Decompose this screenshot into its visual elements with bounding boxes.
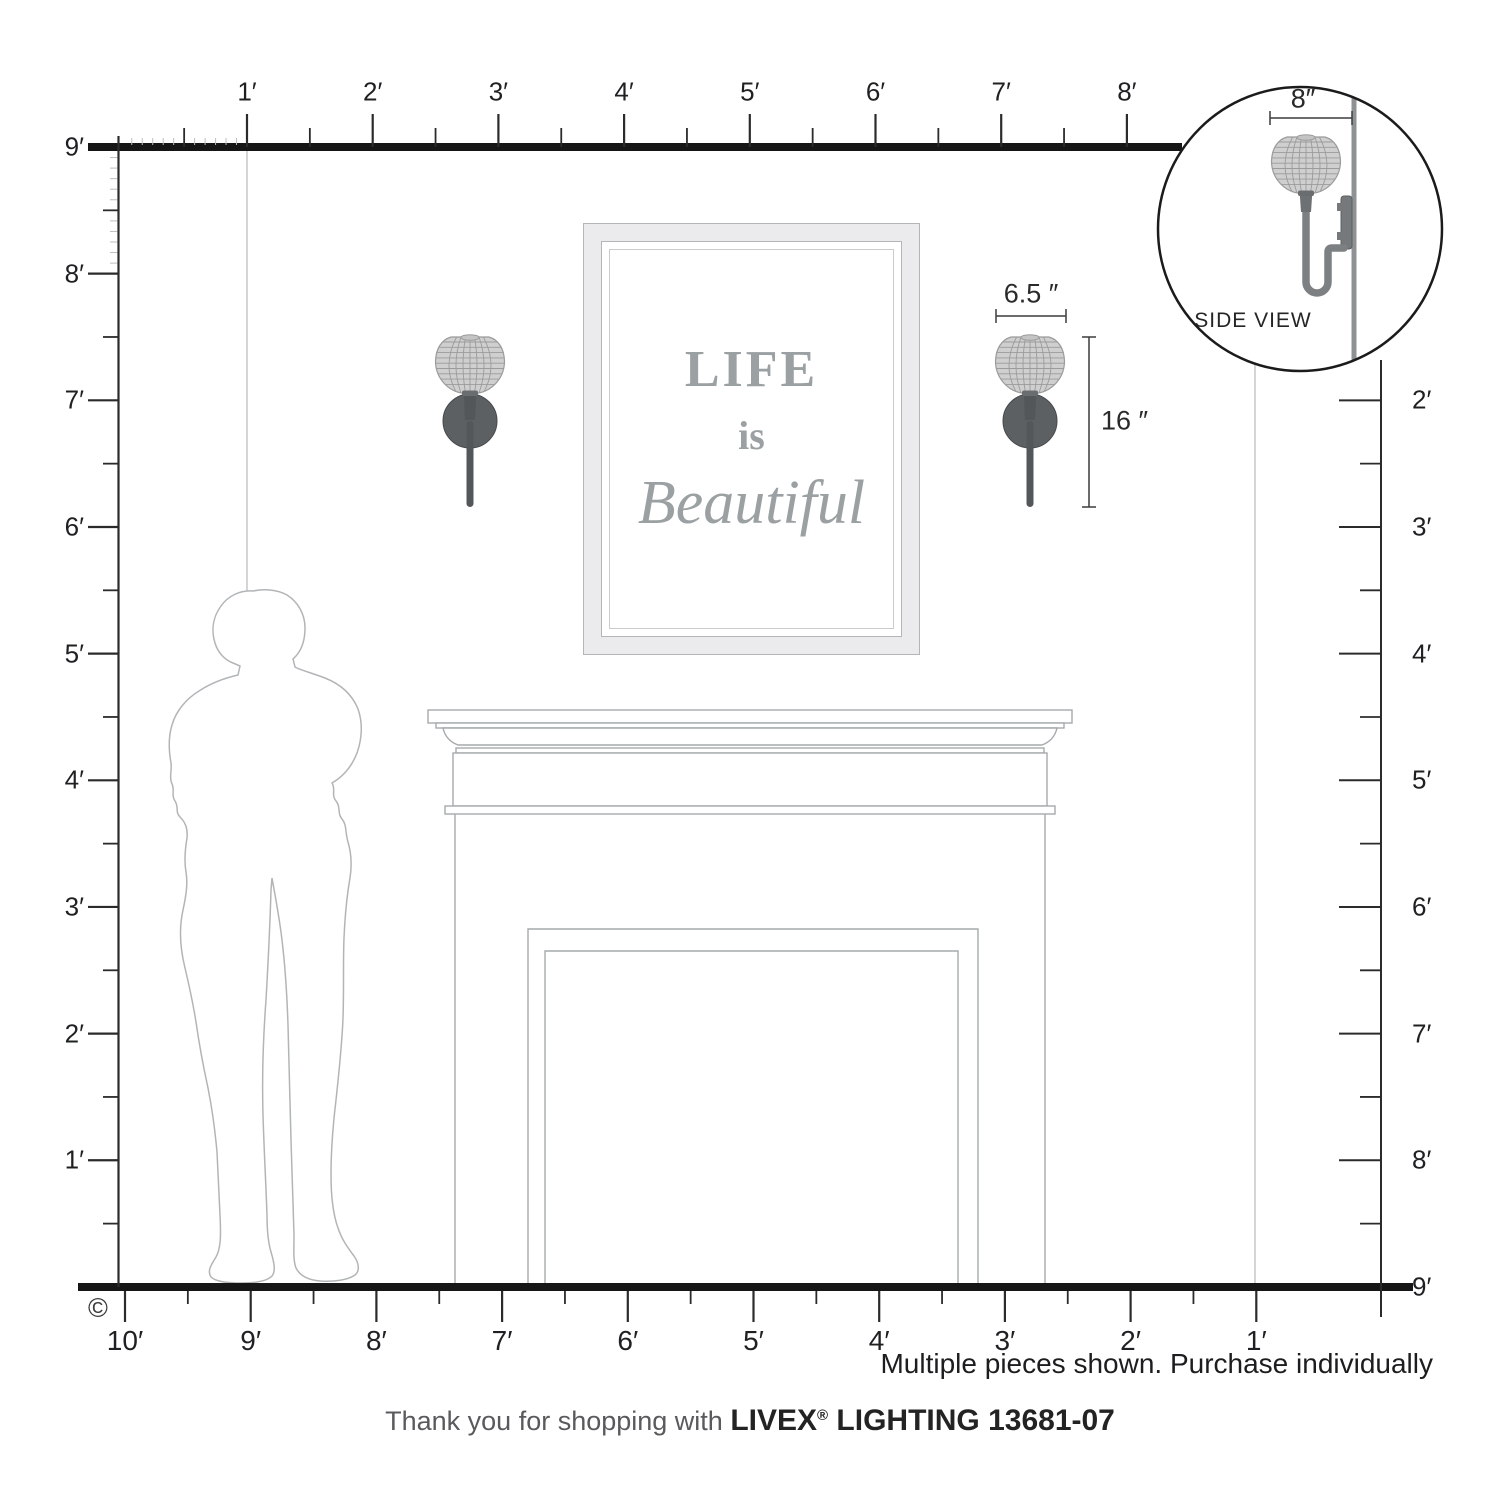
ruler-label-left-3′: 3′ <box>65 891 84 922</box>
ruler-label-right-5′: 5′ <box>1412 765 1431 796</box>
ruler-label-bottom-9′: 9′ <box>240 1325 261 1357</box>
fireplace-mantel <box>428 710 1072 1285</box>
footer-suffix: LIGHTING 13681-07 <box>828 1404 1115 1437</box>
footer-prefix: Thank you for shopping with <box>385 1406 730 1436</box>
artwork-text-is: is <box>738 416 765 456</box>
human-silhouette <box>169 590 361 1283</box>
ruler-label-bottom-6′: 6′ <box>617 1325 638 1357</box>
ruler-label-right-7′: 7′ <box>1412 1018 1431 1049</box>
footer-registered-mark: ® <box>817 1407 828 1424</box>
framed-artwork: LIFE is Beautiful <box>583 223 920 655</box>
footer-text: Thank you for shopping with LIVEX® LIGHT… <box>0 1404 1500 1438</box>
ruler-label-top-4′: 4′ <box>614 77 633 108</box>
ruler-label-left-7′: 7′ <box>65 385 84 416</box>
ruler-label-left-1′: 1′ <box>65 1145 84 1176</box>
ruler-label-bottom-7′: 7′ <box>492 1325 513 1357</box>
ruler-label-top-1′: 1′ <box>237 77 256 108</box>
ruler-label-left-4′: 4′ <box>65 765 84 796</box>
ruler-label-left-8′: 8′ <box>65 258 84 289</box>
copyright-symbol: © <box>88 1293 108 1324</box>
ruler-label-bottom-10′: 10′ <box>107 1325 143 1357</box>
ruler-label-right-floor: 9′ <box>1412 1272 1431 1303</box>
artwork-mat: LIFE is Beautiful <box>601 241 902 637</box>
multiple-pieces-note: Multiple pieces shown. Purchase individu… <box>880 1348 1433 1380</box>
ruler-label-top-8′: 8′ <box>1117 77 1136 108</box>
ruler-label-right-8′: 8′ <box>1412 1145 1431 1176</box>
artwork-field: LIFE is Beautiful <box>609 249 894 629</box>
fixture-height-label: 16 ″ <box>1101 406 1148 437</box>
ruler-label-top-2′: 2′ <box>363 77 382 108</box>
footer-brand: LIVEX <box>730 1404 817 1437</box>
ruler-label-left-5′: 5′ <box>65 638 84 669</box>
artwork-text-beautiful: Beautiful <box>638 472 865 534</box>
ruler-label-top-6′: 6′ <box>866 77 885 108</box>
ruler-label-left-2′: 2′ <box>65 1018 84 1049</box>
ruler-label-top-5′: 5′ <box>740 77 759 108</box>
sconce-left <box>436 335 505 507</box>
ruler-label-right-3′: 3′ <box>1412 511 1431 542</box>
ruler-label-top-3′: 3′ <box>489 77 508 108</box>
artwork-text-life: LIFE <box>685 344 818 396</box>
side-view-label: SIDE VIEW <box>1194 309 1312 333</box>
ruler-label-right-2′: 2′ <box>1412 385 1431 416</box>
sconce-right <box>996 335 1065 507</box>
ruler-label-bottom-8′: 8′ <box>366 1325 387 1357</box>
ruler-label-top-7′: 7′ <box>992 77 1011 108</box>
side-depth-label: 8″ <box>1291 84 1316 115</box>
ruler-label-left-9′: 9′ <box>65 132 84 163</box>
ruler-label-right-6′: 6′ <box>1412 891 1431 922</box>
product-dimension-diagram: LIFE is Beautiful 6.5 ″ 16 ″ 8″ SIDE VIE… <box>0 0 1500 1500</box>
ruler-label-right-4′: 4′ <box>1412 638 1431 669</box>
ruler-label-bottom-5′: 5′ <box>743 1325 764 1357</box>
shade-width-label: 6.5 ″ <box>1004 279 1059 310</box>
ruler-label-left-6′: 6′ <box>65 511 84 542</box>
